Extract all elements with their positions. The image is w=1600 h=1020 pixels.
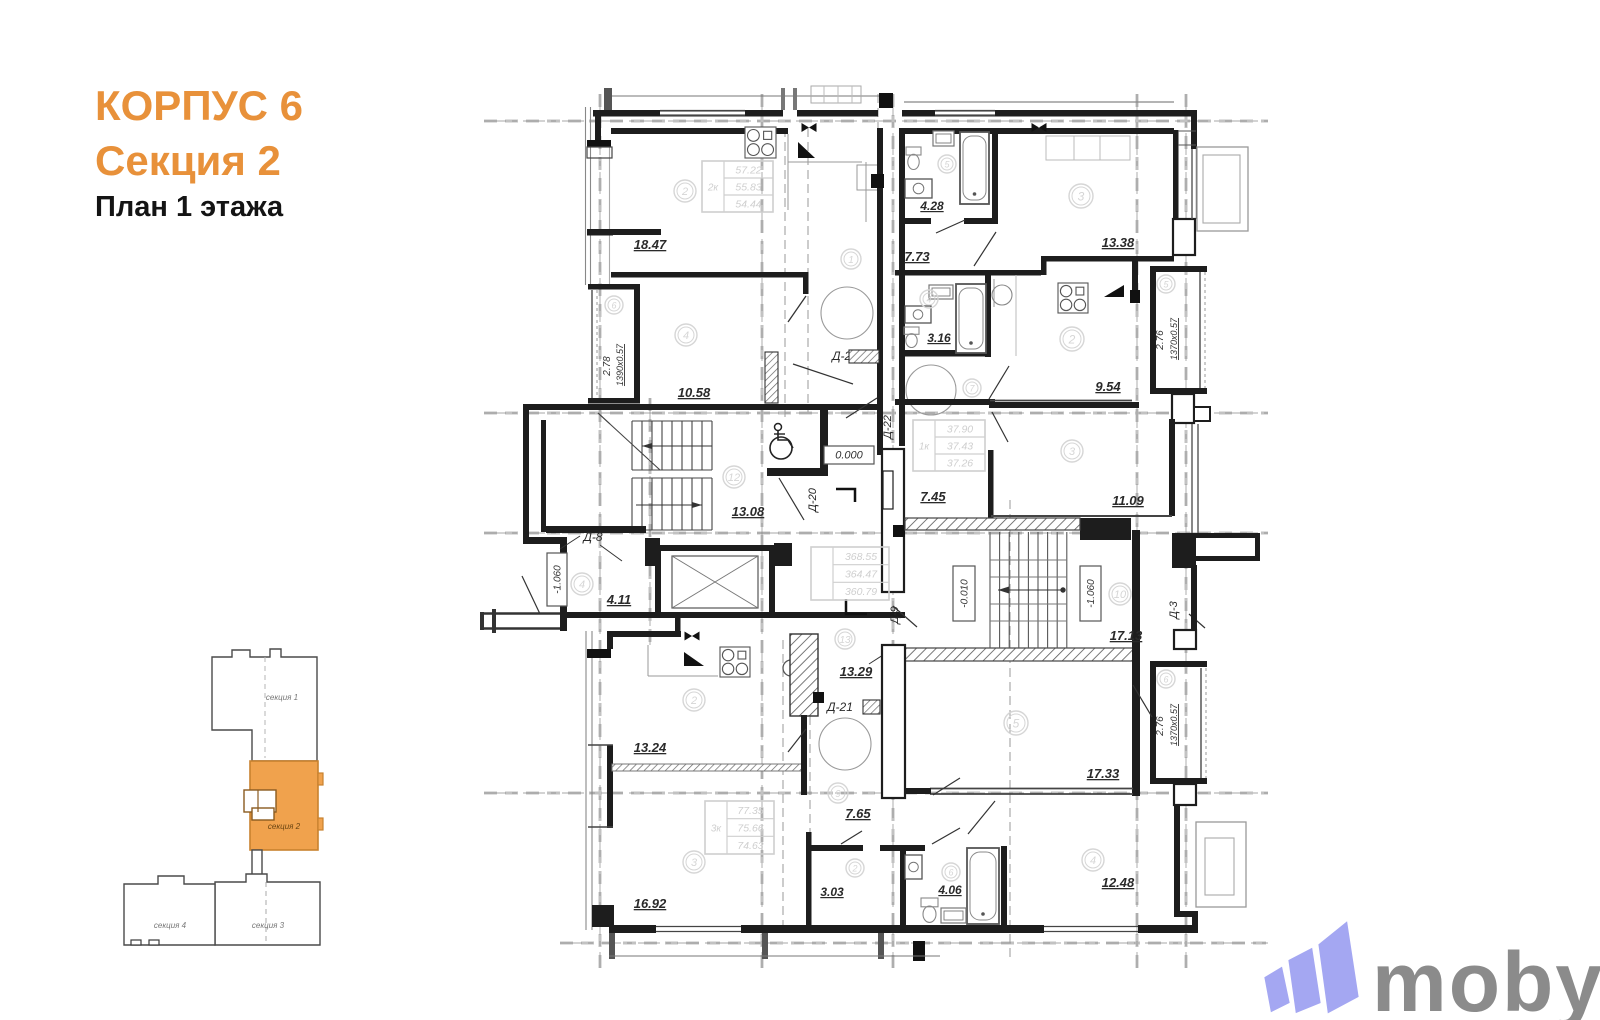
svg-text:-1.060: -1.060 (553, 565, 564, 594)
svg-text:360.79: 360.79 (845, 586, 877, 598)
svg-text:12: 12 (728, 472, 740, 484)
svg-text:13.24: 13.24 (634, 740, 667, 755)
svg-text:368.55: 368.55 (845, 551, 877, 563)
svg-text:6: 6 (948, 867, 953, 877)
svg-text:7.45: 7.45 (920, 489, 946, 504)
svg-text:3к: 3к (711, 824, 723, 835)
svg-text:7.65: 7.65 (845, 806, 871, 821)
svg-text:Д-3: Д-3 (1168, 600, 1180, 620)
svg-text:12.48: 12.48 (1102, 875, 1135, 890)
svg-text:4.06: 4.06 (937, 883, 962, 897)
svg-text:77.35: 77.35 (737, 805, 763, 817)
svg-text:3.16: 3.16 (927, 331, 951, 345)
svg-text:1390х0.57: 1390х0.57 (615, 343, 625, 386)
svg-text:2.76: 2.76 (1155, 716, 1166, 737)
svg-text:4: 4 (683, 330, 689, 342)
svg-text:54.44: 54.44 (735, 199, 761, 211)
svg-text:2: 2 (851, 863, 857, 873)
svg-text:5: 5 (1013, 717, 1020, 731)
svg-text:Д-8: Д-8 (581, 530, 602, 544)
svg-text:3: 3 (1078, 190, 1085, 204)
svg-text:1: 1 (848, 255, 854, 266)
svg-text:11.09: 11.09 (1112, 493, 1144, 508)
svg-text:2: 2 (681, 186, 688, 198)
svg-text:55.83: 55.83 (735, 182, 761, 194)
svg-text:37.90: 37.90 (947, 424, 973, 436)
svg-text:0.000: 0.000 (835, 450, 863, 462)
svg-text:План 1 этажа: План 1 этажа (95, 191, 284, 223)
svg-text:3: 3 (1069, 446, 1076, 458)
svg-text:4.11: 4.11 (606, 592, 631, 607)
svg-text:Д-21: Д-21 (825, 700, 853, 714)
svg-text:10.58: 10.58 (678, 385, 711, 400)
svg-text:18.47: 18.47 (634, 237, 667, 252)
svg-text:КОРПУС 6: КОРПУС 6 (95, 82, 303, 129)
svg-text:6: 6 (611, 300, 616, 310)
svg-text:75.66: 75.66 (737, 823, 763, 835)
svg-text:moby: moby (1372, 935, 1600, 1020)
svg-text:74.63: 74.63 (737, 840, 763, 852)
svg-text:17.33: 17.33 (1087, 766, 1120, 781)
svg-text:37.43: 37.43 (947, 441, 973, 453)
svg-text:13.38: 13.38 (1102, 235, 1135, 250)
svg-text:6: 6 (1163, 674, 1168, 684)
svg-text:13.29: 13.29 (840, 664, 873, 679)
svg-text:7.73: 7.73 (904, 249, 930, 264)
svg-text:37.26: 37.26 (947, 458, 973, 470)
svg-text:Д-22: Д-22 (882, 415, 894, 441)
svg-text:4: 4 (1090, 855, 1096, 867)
svg-text:10: 10 (1114, 589, 1127, 601)
svg-text:секция 1: секция 1 (266, 693, 298, 702)
svg-text:3: 3 (691, 857, 698, 869)
svg-text:57.22: 57.22 (735, 165, 761, 177)
svg-text:9.54: 9.54 (1095, 379, 1121, 394)
svg-text:2.76: 2.76 (1155, 330, 1166, 351)
svg-text:4: 4 (579, 579, 585, 591)
svg-text:1370х0.57: 1370х0.57 (1169, 317, 1179, 360)
svg-text:17.13: 17.13 (1110, 628, 1143, 643)
svg-text:4.28: 4.28 (919, 199, 944, 213)
svg-text:секция 2: секция 2 (268, 822, 301, 831)
svg-text:9: 9 (835, 789, 841, 800)
svg-text:секция 3: секция 3 (252, 921, 285, 930)
svg-text:секция 4: секция 4 (154, 921, 187, 930)
svg-text:4: 4 (926, 294, 931, 304)
svg-text:16.92: 16.92 (634, 896, 667, 911)
svg-text:1370х0.57: 1370х0.57 (1169, 703, 1179, 746)
svg-text:13.08: 13.08 (732, 504, 765, 519)
svg-text:2: 2 (1068, 333, 1076, 347)
svg-text:13: 13 (839, 635, 851, 646)
svg-text:3.03: 3.03 (820, 885, 844, 899)
svg-text:1к: 1к (919, 442, 931, 453)
svg-text:-0.010: -0.010 (960, 579, 971, 608)
svg-text:Д-9: Д-9 (889, 606, 901, 626)
svg-text:2: 2 (690, 695, 697, 707)
svg-text:Секция 2: Секция 2 (95, 137, 281, 184)
svg-text:2к: 2к (707, 183, 720, 194)
svg-text:Д-20: Д-20 (807, 487, 819, 514)
svg-text:364.47: 364.47 (845, 569, 878, 581)
svg-text:2.78: 2.78 (602, 356, 613, 377)
svg-text:-1.060: -1.060 (1086, 579, 1097, 608)
